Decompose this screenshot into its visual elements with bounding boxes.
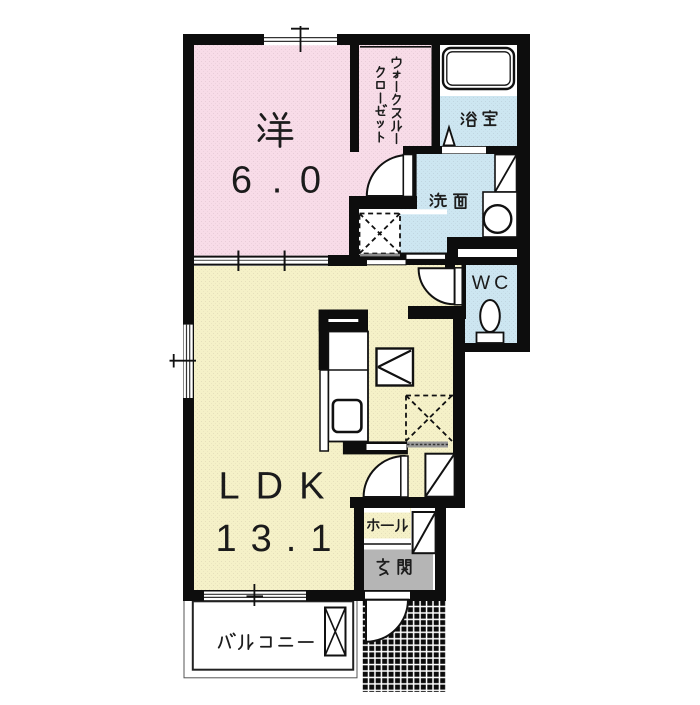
- svg-text:LDK: LDK: [219, 466, 341, 508]
- svg-text:13.1: 13.1: [216, 518, 346, 560]
- svg-text:0: 0: [300, 160, 321, 202]
- svg-text:.: .: [272, 160, 283, 202]
- svg-text:6: 6: [231, 160, 252, 202]
- svg-text:WC: WC: [472, 272, 513, 294]
